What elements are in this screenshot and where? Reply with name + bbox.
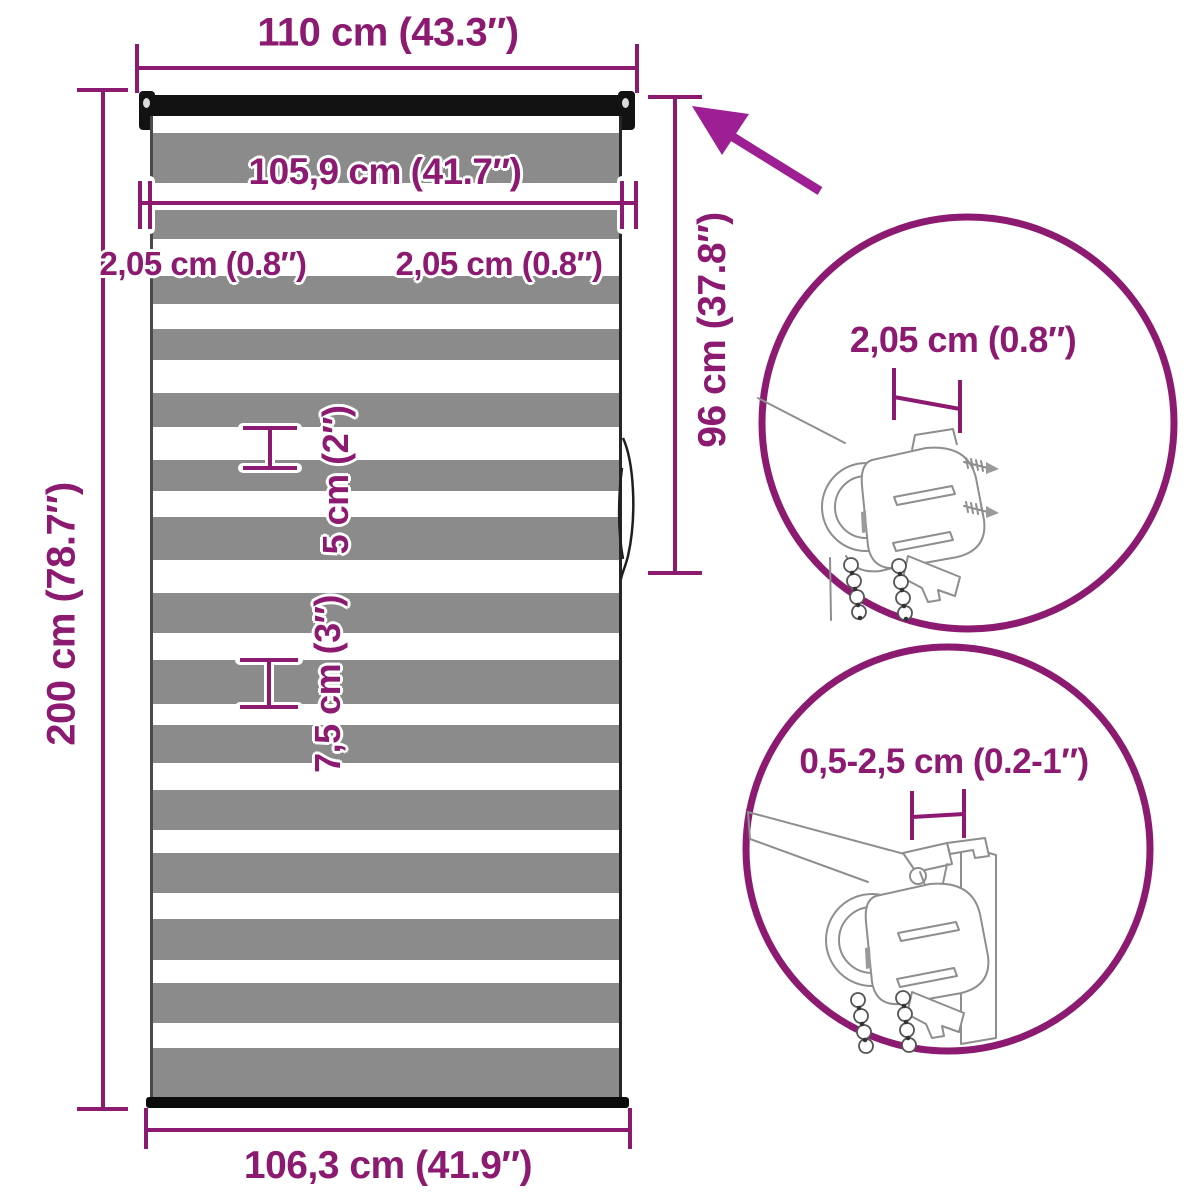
stripe-marker-5cm (243, 428, 297, 468)
stripe-marker-75cm (240, 660, 298, 707)
diagram-linework (0, 0, 1200, 1200)
label-width-bottom: 106,3 cm (41.9″) (244, 1144, 532, 1188)
label-height-total: 200 cm (78.7″) (40, 482, 85, 745)
detail-circle-bottom (746, 647, 1150, 1053)
label-fabric-width: 105,9 cm (41.7″) (248, 151, 521, 193)
label-stripe-small: 5 cm (2″) (315, 406, 357, 555)
label-detail-bottom: 0,5-2,5 cm (0.2-1″) (799, 742, 1088, 782)
product-dimension-diagram: 110 cm (43.3″) 105,9 cm (41.7″) 2,05 cm … (0, 0, 1200, 1200)
dim-height-left (77, 90, 128, 1109)
pull-chain (619, 438, 633, 579)
label-height-roll: 96 cm (37.8″) (691, 212, 735, 447)
dim-width-bottom (146, 1108, 630, 1149)
label-detail-top: 2,05 cm (0.8″) (850, 319, 1076, 361)
detail-circle-outline (762, 217, 1174, 629)
pointer-arrow-icon (692, 106, 820, 191)
label-width-top: 110 cm (43.3″) (257, 11, 518, 56)
label-stripe-large: 7,5 cm (3″) (307, 595, 349, 773)
label-gap-left: 2,05 cm (0.8″) (100, 245, 307, 283)
detail-circle-top (758, 217, 1174, 629)
label-gap-right: 2,05 cm (0.8″) (396, 245, 603, 283)
